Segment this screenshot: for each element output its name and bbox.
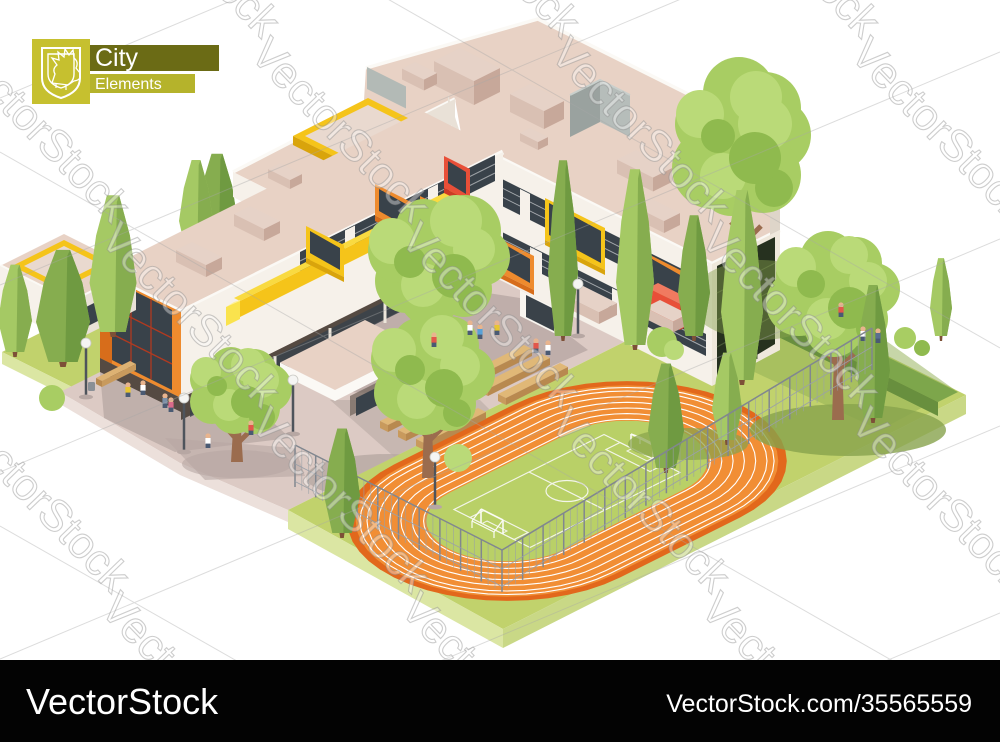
svg-text:City: City <box>95 44 139 72</box>
svg-text:VectorStock: VectorStock <box>26 681 219 722</box>
svg-text:Elements: Elements <box>95 76 162 93</box>
svg-text:VectorStock.com/35565559: VectorStock.com/35565559 <box>666 690 972 718</box>
